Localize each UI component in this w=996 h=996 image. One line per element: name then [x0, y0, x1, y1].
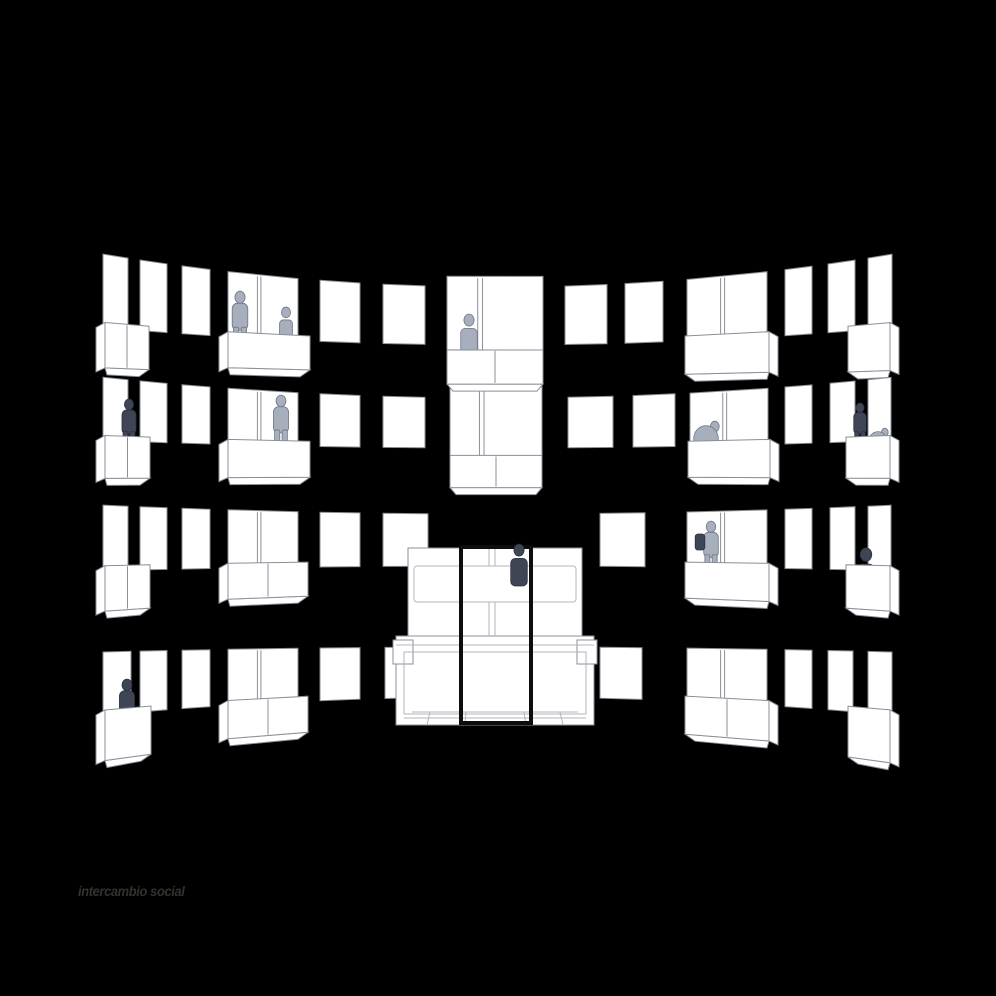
figure-torso: [232, 303, 248, 330]
figure-torso: [511, 558, 528, 586]
figure-head: [860, 548, 872, 561]
window-unit: [182, 650, 210, 709]
balcony: [96, 706, 151, 768]
balcony-side-face: [219, 332, 228, 372]
balcony: [685, 332, 778, 382]
balcony-side-face: [96, 323, 105, 372]
figure-head: [464, 314, 474, 326]
balcony-side-face: [219, 439, 228, 481]
figure-head: [235, 291, 245, 303]
window-unit: [868, 505, 891, 571]
window-unit: [868, 651, 892, 715]
balcony: [219, 696, 308, 746]
window-unit: [785, 650, 812, 709]
window-unit: [687, 272, 767, 341]
balcony-side-face: [769, 701, 778, 745]
balcony: [96, 436, 150, 486]
window-unit: [228, 510, 298, 568]
figures-front-layer: [695, 534, 705, 550]
balcony-bottom-face: [447, 384, 543, 391]
window-unit: [828, 651, 853, 712]
window-unit: [830, 381, 855, 443]
balcony-side-face: [219, 563, 228, 603]
balcony: [96, 565, 150, 618]
window-unit: [383, 396, 425, 448]
balcony-front-face: [228, 439, 310, 477]
diagram-panel: intercambio social: [0, 0, 996, 996]
balcony-side-face: [890, 436, 899, 483]
facade-axonometric-svg: [0, 0, 996, 996]
window-unit: [785, 266, 812, 336]
window-unit: [140, 507, 167, 570]
window-unit: [182, 385, 210, 444]
figure-head: [281, 307, 290, 318]
window-unit: [633, 394, 675, 447]
window-unit: [103, 505, 128, 571]
balcony-front-face: [228, 332, 310, 370]
balcony-bottom-face: [688, 477, 770, 484]
balcony-side-face: [890, 566, 899, 615]
figure-torso: [704, 532, 719, 557]
window-unit: [785, 385, 812, 444]
balcony-side-face: [769, 563, 778, 605]
window-unit: [320, 280, 360, 343]
window-unit: [103, 254, 128, 329]
balcony-front-face: [848, 706, 890, 763]
window-unit: [140, 381, 167, 443]
balcony: [219, 332, 310, 377]
balcony: [685, 562, 778, 608]
window-unit: [600, 513, 645, 567]
balcony: [685, 696, 778, 748]
balcony-front-face: [685, 332, 769, 375]
window-unit: [320, 512, 360, 567]
window-unit: [320, 394, 360, 447]
window-unit: [450, 385, 542, 460]
balcony-side-face: [96, 436, 105, 483]
figure-head: [856, 403, 864, 413]
window-unit: [182, 508, 210, 569]
balcony-bottom-face: [228, 477, 310, 484]
window-unit: [868, 254, 892, 329]
figure-head: [706, 521, 716, 532]
window-unit: [828, 260, 855, 333]
window-unit: [568, 396, 613, 448]
balcony-bottom-face: [450, 488, 542, 495]
figure-torso: [273, 407, 288, 433]
balcony: [447, 350, 543, 391]
window-unit: [785, 508, 812, 569]
balcony-front-face: [685, 562, 769, 601]
window-unit: [565, 285, 607, 345]
balcony-side-face: [96, 566, 105, 615]
figure-torso: [122, 410, 136, 434]
window-unit: [830, 507, 855, 570]
figure-bag: [695, 534, 705, 550]
balcony: [450, 455, 542, 494]
balcony-front-face: [846, 436, 890, 479]
window-unit: [140, 651, 167, 712]
balcony-side-face: [890, 710, 899, 767]
central-structure: [393, 544, 597, 725]
window-unit: [625, 281, 663, 343]
figure-head: [514, 544, 524, 556]
balcony-side-face: [890, 323, 899, 375]
figure-head: [124, 399, 133, 410]
balcony: [848, 323, 899, 379]
window-unit: [600, 647, 642, 699]
balcony-side-face: [770, 439, 779, 481]
balcony: [688, 439, 779, 484]
balcony-side-face: [219, 701, 228, 743]
balcony: [846, 436, 899, 486]
figure-head: [276, 395, 286, 407]
balcony-front-face: [688, 439, 770, 477]
balcony: [848, 706, 899, 770]
caption-label: intercambio social: [78, 883, 184, 899]
balcony-side-face: [96, 710, 105, 765]
window-unit: [320, 648, 360, 701]
balcony: [219, 439, 310, 484]
balcony-front-face: [848, 323, 890, 372]
background: [0, 0, 996, 996]
balcony: [846, 565, 899, 618]
balcony-front-face: [105, 706, 151, 761]
balcony-side-face: [769, 332, 778, 377]
figure-torso: [854, 413, 866, 435]
window-unit: [182, 266, 210, 336]
balcony-front-face: [846, 565, 890, 611]
window-unit: [383, 284, 425, 344]
figure-bag: [695, 534, 705, 550]
window-unit: [140, 260, 167, 333]
balcony: [219, 562, 308, 606]
figure-head: [122, 679, 132, 691]
balcony: [96, 323, 149, 377]
